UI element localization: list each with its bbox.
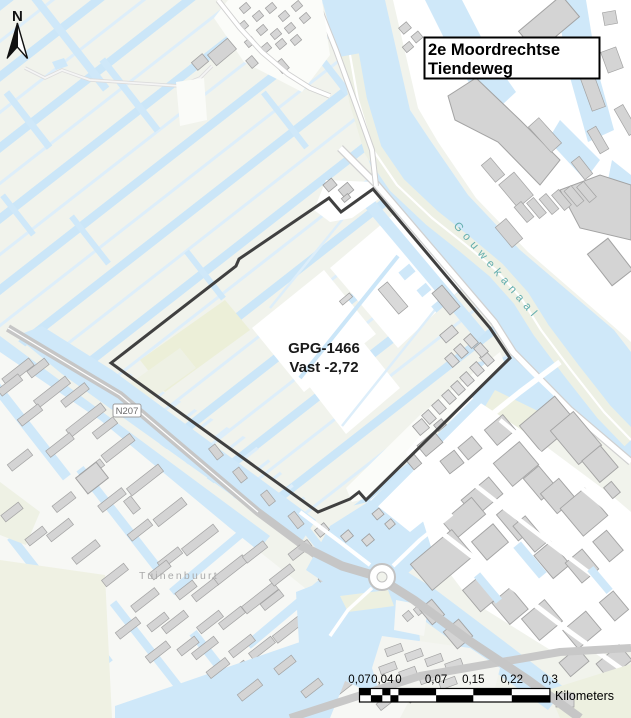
svg-text:2e Moordrechtse: 2e Moordrechtse — [428, 41, 560, 59]
svg-text:0,3: 0,3 — [542, 674, 558, 686]
svg-text:0,15: 0,15 — [462, 674, 484, 686]
svg-text:Tuinenbuurt: Tuinenbuurt — [139, 570, 219, 582]
svg-text:Kilometers: Kilometers — [555, 689, 614, 703]
svg-text:Tiendeweg: Tiendeweg — [428, 60, 513, 78]
svg-text:0,07: 0,07 — [425, 674, 447, 686]
svg-text:0,07: 0,07 — [348, 674, 370, 686]
svg-text:0,04: 0,04 — [371, 674, 394, 686]
svg-text:0,22: 0,22 — [501, 674, 523, 686]
svg-text:N207: N207 — [116, 406, 139, 417]
svg-text:Vast -2,72: Vast -2,72 — [289, 359, 358, 376]
svg-text:GPG-1466: GPG-1466 — [288, 340, 360, 357]
svg-text:N: N — [12, 8, 23, 25]
svg-text:0: 0 — [395, 674, 401, 686]
